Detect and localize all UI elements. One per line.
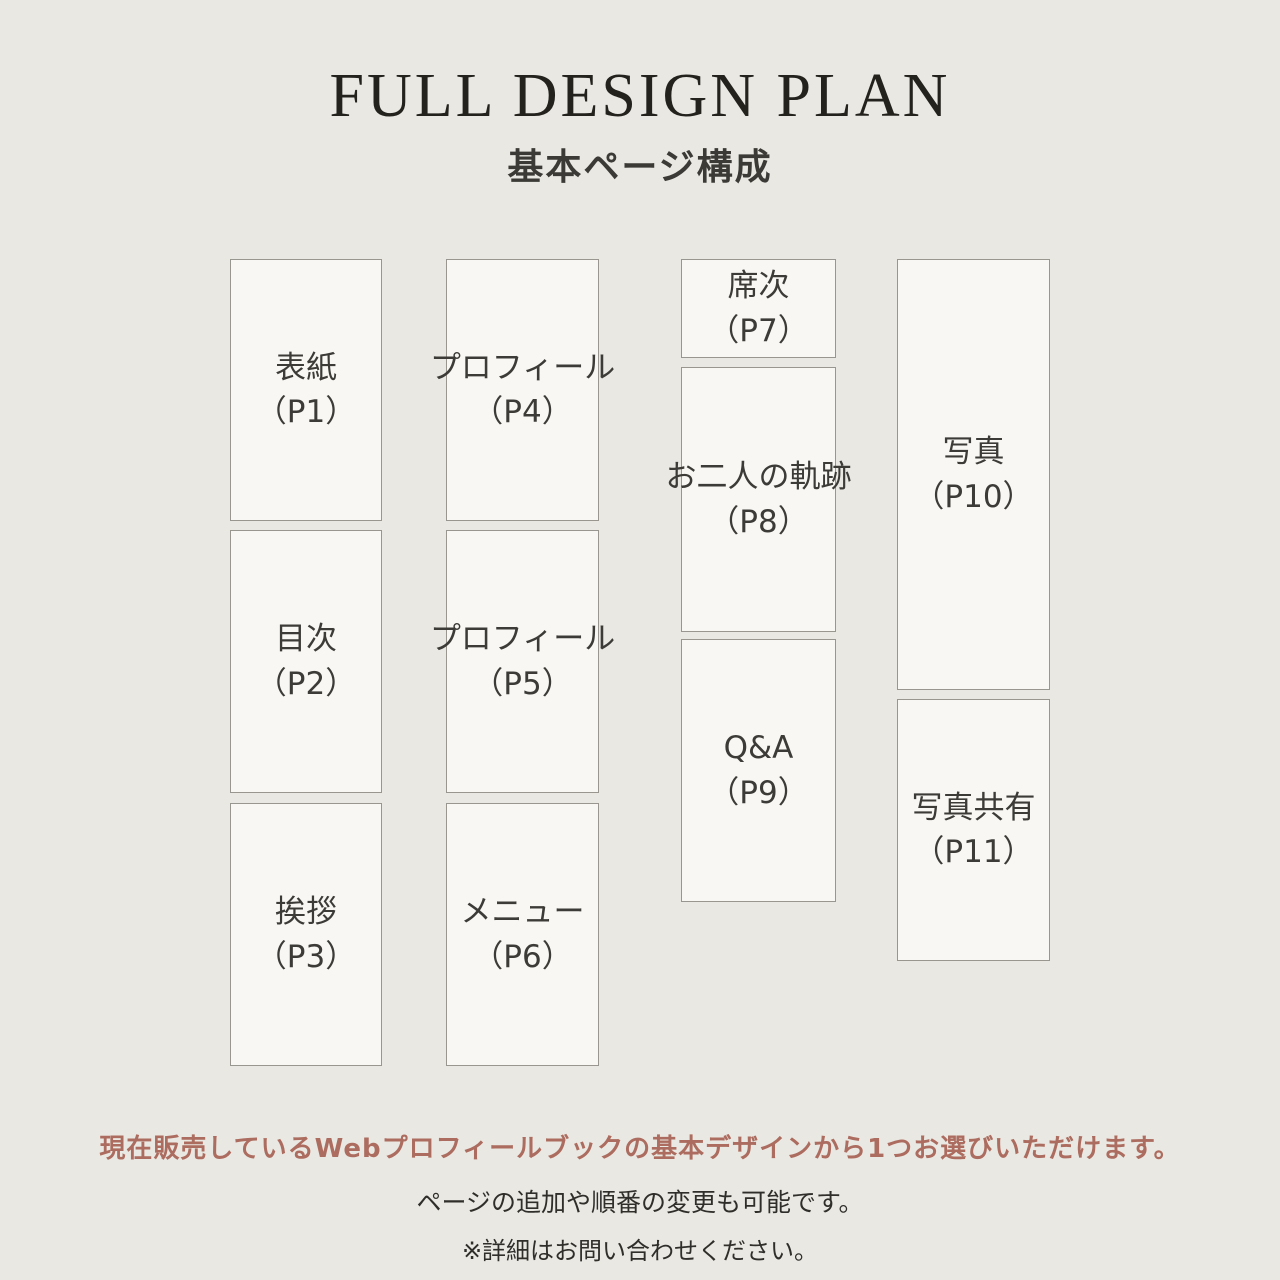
card-page-number: （P11） [912,830,1036,874]
page-card-p11-photo-share: 写真共有 （P11） [897,699,1050,961]
card-page-number: （P3） [256,935,356,979]
page-card-p8-story: お二人の軌跡 （P8） [681,367,836,632]
page-subtitle: 基本ページ構成 [0,146,1280,189]
page-card-p4-profile: プロフィール （P4） [446,259,599,521]
card-label: お二人の軌跡 （P8） [666,455,852,543]
card-title: 席次 [708,264,808,308]
footer-note-pages: ページの追加や順番の変更も可能です。 [0,1183,1280,1219]
page-card-p2-toc: 目次 （P2） [230,530,382,793]
card-label: メニュー （P6） [461,890,585,978]
card-title: 表紙 [256,346,356,390]
card-label: 表紙 （P1） [256,346,356,434]
poster-canvas: FULL DESIGN PLAN 基本ページ構成 表紙 （P1） 目次 （P2）… [0,0,1280,1280]
card-page-number: （P7） [708,309,808,353]
card-title: プロフィール [430,346,615,390]
card-page-number: （P10） [913,475,1033,519]
page-card-p3-greeting: 挨拶 （P3） [230,803,382,1066]
card-title: 目次 [256,617,356,661]
footer-highlight-note: 現在販売しているWebプロフィールブックの基本デザインから1つお選びいただけます… [0,1128,1280,1165]
card-page-number: （P9） [708,771,808,815]
page-card-p9-qa: Q&A （P9） [681,639,836,902]
card-page-number: （P6） [461,935,585,979]
card-label: 目次 （P2） [256,617,356,705]
card-label: 写真 （P10） [913,430,1033,518]
card-page-number: （P4） [430,390,615,434]
page-card-p10-photo: 写真 （P10） [897,259,1050,690]
card-label: プロフィール （P5） [430,617,615,705]
footer-note-contact: ※詳細はお問い合わせください。 [0,1231,1280,1266]
card-title: 写真共有 [912,786,1036,830]
card-label: プロフィール （P4） [430,346,615,434]
card-title: プロフィール [430,617,615,661]
card-label: 挨拶 （P3） [256,890,356,978]
card-page-number: （P5） [430,662,615,706]
card-label: 写真共有 （P11） [912,786,1036,874]
card-title: 写真 [913,430,1033,474]
card-title: お二人の軌跡 [666,455,852,499]
card-page-number: （P8） [666,500,852,544]
footer-notes: 現在販売しているWebプロフィールブックの基本デザインから1つお選びいただけます… [0,1128,1280,1266]
card-title: 挨拶 [256,890,356,934]
card-title: Q&A [708,726,808,770]
card-page-number: （P1） [256,390,356,434]
card-label: Q&A （P9） [708,726,808,814]
card-title: メニュー [461,890,585,934]
card-page-number: （P2） [256,662,356,706]
page-card-p7-seating: 席次 （P7） [681,259,836,358]
page-card-p1-cover: 表紙 （P1） [230,259,382,521]
page-card-p5-profile: プロフィール （P5） [446,530,599,793]
page-card-p6-menu: メニュー （P6） [446,803,599,1066]
page-title: FULL DESIGN PLAN [0,62,1280,130]
card-label: 席次 （P7） [708,264,808,352]
